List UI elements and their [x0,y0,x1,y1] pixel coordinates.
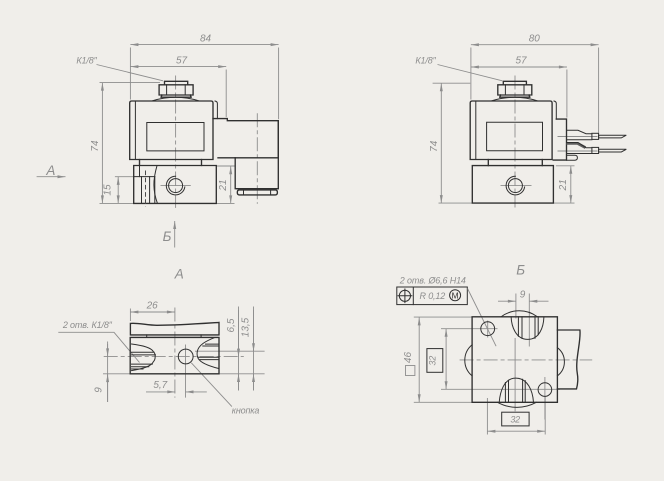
svg-text:К1/8″: К1/8″ [415,56,436,66]
svg-text:57: 57 [515,56,527,67]
svg-text:21: 21 [218,179,229,191]
svg-text:2 отв. К1/8″: 2 отв. К1/8″ [62,320,113,330]
svg-text:2 отв. Ø6,6 H14: 2 отв. Ø6,6 H14 [399,275,466,285]
svg-text:Б: Б [516,263,525,278]
svg-text:кнопка: кнопка [232,406,260,416]
svg-text:26: 26 [146,301,159,312]
svg-text:74: 74 [90,140,101,152]
svg-text:К1/8″: К1/8″ [76,56,97,66]
svg-text:32: 32 [510,415,520,425]
svg-text:M: M [452,290,459,300]
svg-text:А: А [45,163,55,178]
svg-text:57: 57 [176,56,188,67]
svg-text:13,5: 13,5 [241,317,252,337]
svg-text:5,7: 5,7 [153,380,167,391]
svg-text:46: 46 [403,352,414,364]
svg-text:9: 9 [94,387,105,393]
svg-text:21: 21 [558,179,569,191]
svg-text:9: 9 [520,290,526,301]
svg-text:32: 32 [427,356,437,366]
svg-text:Б: Б [163,229,172,244]
svg-text:6,5: 6,5 [226,318,237,332]
svg-text:74: 74 [429,140,440,152]
svg-text:80: 80 [529,34,541,45]
svg-text:А: А [174,267,184,282]
svg-text:84: 84 [200,34,212,45]
svg-text:R 0,12: R 0,12 [420,291,446,301]
svg-text:15: 15 [103,184,114,196]
